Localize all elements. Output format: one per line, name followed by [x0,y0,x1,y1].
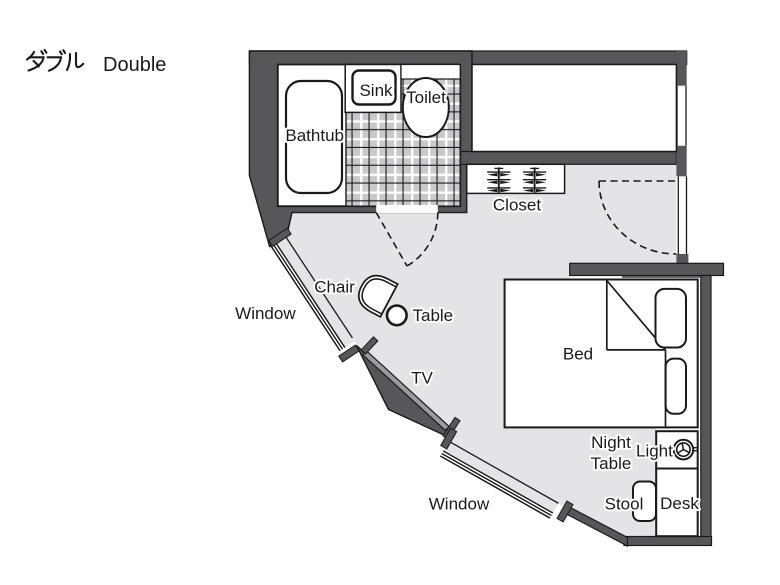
svg-text:Window: Window [235,304,296,323]
svg-text:Bed: Bed [563,345,593,364]
svg-text:Bathtub: Bathtub [285,126,344,145]
svg-text:Stool: Stool [605,495,644,514]
svg-text:Window: Window [429,495,490,514]
svg-text:Table: Table [413,306,454,325]
svg-text:Closet: Closet [493,196,541,215]
svg-text:TV: TV [411,369,433,388]
svg-text:Sink: Sink [359,81,393,100]
svg-text:Double: Double [103,54,166,76]
svg-text:Light: Light [636,442,673,461]
svg-text:Toilet: Toilet [406,88,446,107]
svg-text:Table: Table [591,454,632,473]
svg-text:Desk: Desk [660,494,699,513]
svg-text:Night: Night [591,433,631,452]
svg-text:Chair: Chair [314,278,355,297]
